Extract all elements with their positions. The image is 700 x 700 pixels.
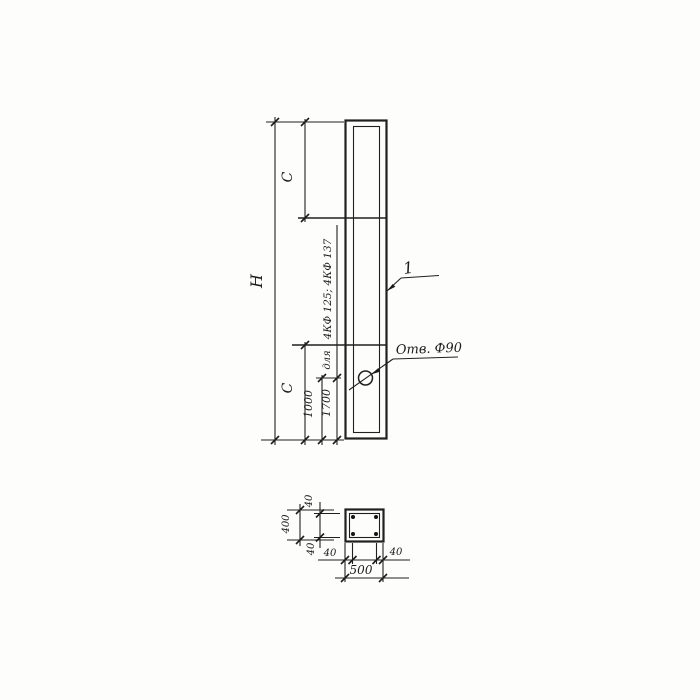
- rebar-dot: [374, 532, 378, 536]
- dim-label-1700: 1700: [320, 389, 333, 417]
- column-inner-edge: [354, 127, 380, 433]
- dim-label-c-bottom: C: [280, 382, 296, 393]
- dim-label-1000: 1000: [302, 390, 315, 418]
- hole-leader-arrow: [371, 368, 380, 375]
- dim-label-40-bottom: 40: [306, 542, 317, 556]
- dim-label-500: 500: [350, 563, 373, 577]
- dim-label-40-left: 40: [323, 548, 337, 559]
- note-for-label: для: [322, 350, 333, 369]
- section-view: 400 40 40 40 40 500: [281, 494, 410, 582]
- dim-label-h: H: [247, 273, 266, 289]
- elevation-view: Отв. Ф90 1 H C C 1000 1700 4КФ 125; 4КФ …: [247, 117, 462, 445]
- part-number-label: 1: [402, 258, 415, 278]
- dim-label-c-top: C: [280, 171, 296, 182]
- note-types-label: 4КФ 125; 4КФ 137: [322, 238, 334, 340]
- section-outline: [346, 510, 384, 542]
- rebar-dot: [374, 515, 378, 519]
- column-outline: [346, 121, 387, 439]
- drawing-canvas: Отв. Ф90 1 H C C 1000 1700 4КФ 125; 4КФ …: [0, 0, 700, 700]
- rebar-dot: [351, 532, 355, 536]
- rebar-dot: [351, 515, 355, 519]
- dim-label-40-right: 40: [389, 547, 403, 558]
- dim-label-400: 400: [281, 514, 292, 535]
- hole-callout-label: Отв. Ф90: [396, 341, 463, 358]
- drawing-sheet: Отв. Ф90 1 H C C 1000 1700 4КФ 125; 4КФ …: [0, 0, 700, 700]
- dim-label-40-top: 40: [304, 494, 315, 508]
